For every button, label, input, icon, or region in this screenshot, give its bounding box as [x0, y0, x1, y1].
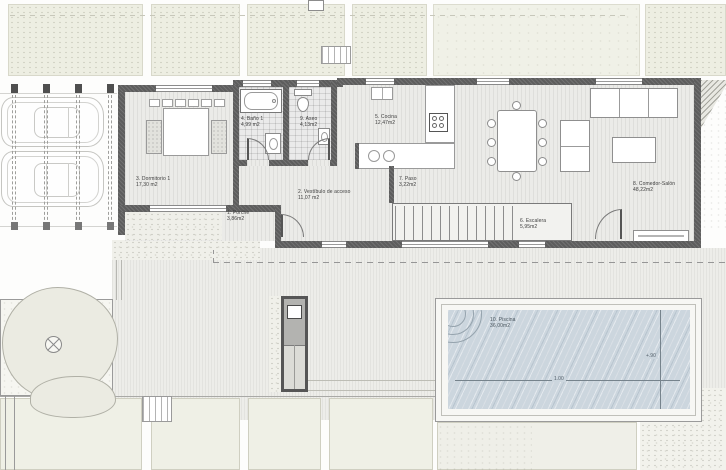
car-cabin: [34, 163, 80, 197]
room-area: 4,99 m2: [241, 122, 263, 128]
appliance-divider: [382, 88, 383, 99]
pergola-post: [11, 222, 18, 230]
room-label-comedor: 8. Comedor-Salón 48,22m2: [633, 181, 675, 194]
room-area: 4,13m2: [300, 122, 317, 128]
pool-dim-length: 1.00: [552, 377, 566, 382]
window: [322, 241, 346, 248]
pergola-beam: [76, 95, 80, 225]
sofa-cushion-divider: [619, 89, 620, 117]
pool-dim-line-h: [455, 380, 680, 381]
pergola-post: [43, 84, 50, 93]
pillow: [162, 99, 173, 107]
car: [1, 151, 104, 207]
sofa-cushion-divider: [648, 89, 649, 117]
burner: [439, 116, 444, 121]
wall-bath-aseo: [283, 80, 289, 166]
pillow: [149, 99, 160, 107]
room-label-paso: 7. Paso 3,22m2: [399, 176, 417, 189]
dining-chair: [487, 157, 496, 166]
pergola-post: [75, 84, 82, 93]
sofa: [590, 88, 678, 118]
sideboard-line: [638, 235, 684, 237]
room-label-vestibulo: 2. Vestíbulo de acceso 11,07 m2: [298, 189, 351, 202]
texture-patch: [269, 296, 281, 392]
coffee-table: [612, 137, 656, 163]
pillow: [188, 99, 199, 107]
boundary-dashed-line: [213, 262, 726, 263]
boundary-dashed-line: [213, 250, 214, 262]
pool-shed: [281, 296, 308, 392]
dining-table: [497, 110, 537, 172]
toilet-tank: [294, 89, 312, 96]
car: [1, 97, 104, 147]
dining-chair: [512, 101, 521, 110]
garden-steps: [321, 46, 351, 64]
pergola-post: [107, 222, 114, 230]
sofa-cushion-divider: [561, 146, 589, 147]
room-label-cocina: 5. Cocina 12,47m2: [375, 114, 397, 127]
pergola-beam: [108, 95, 112, 225]
pool-water: 1.00 +.90 10. Piscina 36,00m2: [448, 310, 690, 409]
wall-aseo-east: [331, 80, 337, 166]
cooktop: [429, 113, 448, 132]
wardrobe: [146, 120, 162, 154]
window: [150, 205, 226, 212]
pool-shed-window: [287, 305, 302, 319]
burner: [439, 123, 444, 128]
window: [243, 80, 271, 87]
tree-trunk-marker: [45, 336, 62, 353]
sink-bowl: [368, 150, 380, 162]
bed: [163, 108, 209, 156]
site-line: [5, 390, 15, 470]
floor-plan: 1.00 +.90 10. Piscina 36,00m2: [0, 0, 726, 470]
dining-chair: [538, 157, 547, 166]
burner: [432, 116, 437, 121]
pool-shed-divider: [294, 345, 295, 389]
car-cabin: [34, 107, 80, 138]
wall-right: [694, 78, 701, 248]
pool-steps: [448, 310, 482, 343]
window: [156, 85, 212, 92]
door-opening: [247, 160, 269, 166]
room-area: 3,22m2: [399, 182, 417, 188]
room-area: 12,47m2: [375, 120, 397, 126]
pillow: [201, 99, 212, 107]
wall-bedroom-bath: [233, 85, 239, 212]
kitchen-appliance: [371, 87, 393, 100]
contour-line: [10, 15, 630, 16]
room-area: 48,22m2: [633, 187, 675, 193]
window: [477, 78, 509, 85]
dining-chair: [487, 138, 496, 147]
car-rear-window: [68, 163, 69, 197]
pergola-post: [107, 84, 114, 93]
paving-panel: [248, 398, 321, 470]
burner: [432, 123, 437, 128]
sofa-chaise: [560, 120, 590, 172]
tree-canopy: [30, 376, 116, 418]
room-label-dormitorio: 3. Dormitorio 1 17,30 m2: [136, 176, 170, 189]
bathtub: [240, 89, 282, 113]
wall-stub: [355, 143, 359, 169]
room-label-escalera: 6. Escalera 5,95m2: [520, 218, 546, 231]
window: [297, 80, 319, 87]
room-area: 5,95m2: [520, 224, 546, 230]
dining-chair: [512, 172, 521, 181]
pool-dim-line-v: [660, 310, 661, 409]
window: [596, 78, 642, 85]
garden-shed: [308, 0, 324, 11]
kitchen-island: [358, 143, 455, 169]
path-line: [308, 390, 437, 391]
paving-panel: [329, 398, 433, 470]
carport-edge: [0, 93, 117, 94]
pillow: [175, 99, 186, 107]
room-label-porche: 1. Porche 3,86m2: [227, 210, 249, 223]
garden-panel: [645, 4, 726, 76]
basin-bowl: [269, 138, 278, 150]
pergola-post: [75, 222, 82, 230]
pergola-beam: [44, 95, 48, 225]
dining-chair: [487, 119, 496, 128]
pillow: [214, 99, 225, 107]
window: [366, 78, 394, 85]
door-opening: [308, 160, 330, 166]
room-label-bano: 4. Baño 1 4,99 m2: [241, 116, 263, 129]
texture-patch: [437, 424, 532, 470]
porch-gravel: [125, 212, 222, 240]
window: [519, 241, 545, 248]
path-line: [308, 380, 437, 381]
window: [402, 241, 488, 248]
wardrobe: [211, 120, 227, 154]
gravel-patch: [112, 240, 260, 260]
dining-chair: [538, 138, 547, 147]
room-label-piscina: 10. Piscina 36,00m2: [490, 317, 516, 330]
room-area: 36,00m2: [490, 323, 516, 329]
bathtub-drain: [272, 99, 276, 103]
room-area: 11,07 m2: [298, 195, 351, 201]
room-area: 3,86m2: [227, 216, 249, 222]
pool-dim-depth: +.90: [644, 354, 658, 359]
pergola-post: [43, 222, 50, 230]
exterior-steps: [142, 396, 172, 422]
wall-left: [118, 85, 125, 235]
wall-paso: [389, 166, 394, 203]
sink-bowl: [383, 150, 395, 162]
dining-chair: [538, 119, 547, 128]
stair-treads: [395, 206, 517, 240]
pergola-beam: [12, 95, 16, 225]
car-rear-window: [68, 107, 69, 138]
pergola-post: [11, 84, 18, 93]
room-label-aseo: 9. Aseo 4,13m2: [300, 116, 317, 129]
room-area: 17,30 m2: [136, 182, 170, 188]
